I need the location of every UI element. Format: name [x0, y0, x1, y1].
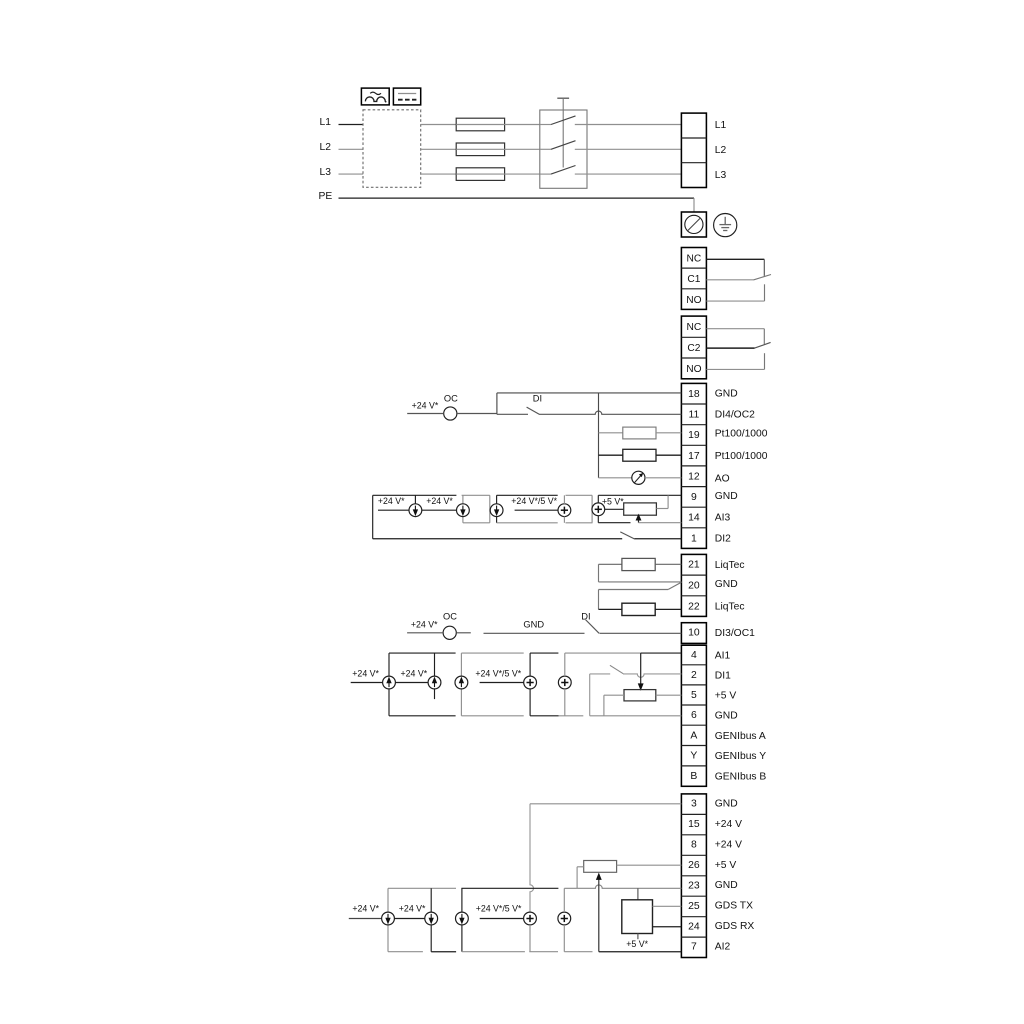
svg-text:9: 9	[691, 492, 697, 503]
svg-text:NC: NC	[687, 254, 702, 265]
svg-text:OC: OC	[444, 393, 458, 403]
svg-text:+24 V*/5 V*: +24 V*/5 V*	[475, 668, 521, 678]
svg-text:23: 23	[688, 880, 700, 891]
svg-text:22: 22	[688, 602, 700, 613]
svg-text:Pt100/1000: Pt100/1000	[715, 451, 768, 462]
svg-text:GND: GND	[715, 579, 738, 590]
svg-text:+5 V*: +5 V*	[626, 939, 648, 949]
svg-text:24: 24	[688, 921, 700, 932]
svg-text:+24 V*: +24 V*	[399, 903, 426, 913]
svg-text:DI: DI	[533, 393, 542, 403]
svg-text:Pt100/1000: Pt100/1000	[715, 429, 768, 440]
svg-text:L1: L1	[320, 117, 332, 128]
svg-text:DI1: DI1	[715, 670, 731, 681]
svg-text:17: 17	[688, 451, 700, 462]
svg-text:GDS TX: GDS TX	[715, 901, 753, 912]
svg-text:+5 V: +5 V	[715, 860, 737, 871]
svg-text:+24 V*: +24 V*	[352, 668, 379, 678]
svg-text:8: 8	[691, 839, 697, 850]
svg-text:6: 6	[691, 710, 697, 721]
svg-text:AO: AO	[715, 473, 730, 484]
svg-text:GND: GND	[715, 711, 738, 722]
svg-text:4: 4	[691, 650, 697, 661]
svg-text:L1: L1	[715, 120, 727, 131]
svg-text:GND: GND	[715, 798, 738, 809]
svg-text:Y: Y	[690, 751, 697, 762]
svg-text:GND: GND	[715, 491, 738, 502]
svg-text:+24 V*: +24 V*	[411, 620, 438, 630]
svg-text:LiqTec: LiqTec	[715, 602, 745, 613]
svg-text:25: 25	[688, 901, 700, 912]
svg-text:L2: L2	[320, 142, 332, 153]
svg-text:L3: L3	[715, 170, 727, 181]
svg-text:18: 18	[688, 389, 700, 400]
svg-text:OC: OC	[443, 612, 457, 622]
svg-text:+24 V: +24 V	[715, 819, 742, 830]
svg-text:5: 5	[691, 690, 697, 701]
svg-text:10: 10	[688, 627, 700, 638]
svg-text:7: 7	[691, 942, 697, 953]
svg-text:12: 12	[688, 471, 700, 482]
svg-text:NO: NO	[686, 295, 701, 306]
svg-text:+24 V*/5 V*: +24 V*/5 V*	[476, 903, 522, 913]
svg-text:+24 V*: +24 V*	[352, 903, 379, 913]
svg-text:GND: GND	[523, 620, 544, 630]
svg-text:GND: GND	[715, 880, 738, 891]
svg-text:1: 1	[691, 533, 697, 544]
svg-text:PE: PE	[319, 191, 333, 202]
svg-text:A: A	[690, 730, 697, 741]
svg-text:+24 V*: +24 V*	[426, 496, 453, 506]
svg-text:GENIbus Y: GENIbus Y	[715, 751, 766, 762]
svg-text:GENIbus A: GENIbus A	[715, 731, 766, 742]
svg-text:DI3/OC1: DI3/OC1	[715, 628, 755, 639]
svg-text:19: 19	[688, 430, 700, 441]
svg-text:+24 V*: +24 V*	[401, 668, 428, 678]
svg-text:+24 V*/5 V*: +24 V*/5 V*	[511, 496, 557, 506]
svg-text:GDS RX: GDS RX	[715, 921, 755, 932]
svg-text:NO: NO	[686, 364, 701, 375]
svg-text:+5 V: +5 V	[715, 690, 737, 701]
svg-text:AI2: AI2	[715, 942, 731, 953]
svg-text:+5 V*: +5 V*	[602, 496, 624, 506]
svg-text:+24 V*: +24 V*	[412, 400, 439, 410]
svg-text:14: 14	[688, 513, 700, 524]
svg-text:+24 V*: +24 V*	[378, 496, 405, 506]
svg-text:AI3: AI3	[715, 512, 731, 523]
svg-text:NC: NC	[687, 322, 702, 333]
svg-text:LiqTec: LiqTec	[715, 560, 745, 571]
svg-text:GND: GND	[715, 389, 738, 400]
svg-text:3: 3	[691, 799, 697, 810]
svg-text:GENIbus B: GENIbus B	[715, 772, 767, 783]
svg-text:21: 21	[688, 559, 700, 570]
svg-text:+24 V: +24 V	[715, 839, 742, 850]
svg-text:AI1: AI1	[715, 650, 731, 661]
svg-text:11: 11	[689, 410, 700, 421]
svg-text:2: 2	[691, 670, 697, 681]
svg-text:B: B	[690, 771, 697, 782]
svg-text:DI2: DI2	[715, 533, 731, 544]
svg-text:26: 26	[688, 860, 700, 871]
svg-text:L2: L2	[715, 145, 727, 156]
svg-text:C1: C1	[687, 274, 700, 285]
svg-text:15: 15	[688, 819, 700, 830]
svg-text:C2: C2	[687, 343, 700, 354]
svg-text:L3: L3	[320, 167, 332, 178]
svg-text:20: 20	[688, 580, 700, 591]
svg-text:DI4/OC2: DI4/OC2	[715, 409, 755, 420]
